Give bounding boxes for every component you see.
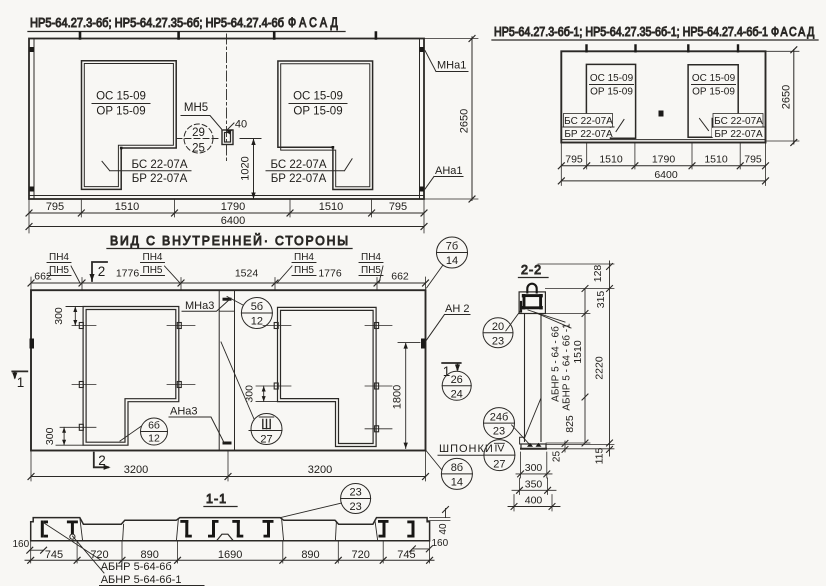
svg-text:8б: 8б	[451, 462, 463, 474]
svg-text:АНа1: АНа1	[435, 165, 463, 177]
svg-text:АНа3: АНа3	[170, 406, 198, 418]
svg-text:БС 22-07А: БС 22-07А	[131, 159, 187, 171]
svg-text:400: 400	[525, 495, 543, 507]
svg-text:23: 23	[493, 426, 505, 438]
svg-text:ПН5: ПН5	[361, 265, 381, 276]
svg-text:ПН5: ПН5	[49, 265, 69, 276]
svg-text:14: 14	[446, 255, 458, 267]
svg-text:ПН5: ПН5	[294, 265, 314, 276]
svg-text:2: 2	[98, 453, 106, 468]
svg-text:БР 22-07А: БР 22-07А	[564, 129, 613, 140]
svg-text:1800: 1800	[392, 385, 404, 409]
svg-text:40: 40	[438, 523, 449, 535]
svg-text:МН5: МН5	[184, 102, 208, 114]
svg-text:795: 795	[565, 154, 583, 166]
svg-text:26: 26	[451, 374, 463, 386]
svg-text:ВИД С ВНУТРЕННЕЙ· СТОРОНЫ: ВИД С ВНУТРЕННЕЙ· СТОРОНЫ	[110, 233, 350, 248]
svg-text:3200: 3200	[124, 464, 148, 476]
svg-text:1: 1	[17, 375, 25, 390]
svg-text:23: 23	[349, 487, 361, 499]
svg-text:ПН4: ПН4	[143, 252, 163, 263]
svg-text:300: 300	[525, 462, 543, 474]
svg-text:795: 795	[389, 201, 407, 213]
svg-text:2: 2	[98, 264, 106, 279]
svg-text:1510: 1510	[704, 154, 728, 166]
svg-text:1524: 1524	[235, 268, 259, 280]
svg-text:5б: 5б	[251, 301, 263, 313]
svg-text:315: 315	[595, 291, 607, 309]
svg-text:2650: 2650	[459, 109, 471, 133]
svg-text:МНа1: МНа1	[437, 60, 466, 72]
svg-text:27: 27	[260, 434, 272, 446]
svg-text:БР 22-07А: БР 22-07А	[714, 129, 763, 140]
svg-text:350: 350	[525, 479, 543, 491]
svg-text:ОР 15-09: ОР 15-09	[692, 87, 735, 98]
svg-text:БР 22-07А: БР 22-07А	[132, 173, 188, 185]
svg-text:2650: 2650	[780, 85, 792, 109]
svg-text:300: 300	[44, 427, 56, 445]
svg-text:25: 25	[552, 451, 563, 463]
svg-text:1510: 1510	[572, 340, 584, 364]
svg-text:БС 22-07А: БС 22-07А	[270, 159, 326, 171]
svg-text:128: 128	[592, 265, 604, 283]
svg-text:23: 23	[349, 501, 361, 513]
svg-text:АБНР 5-64-6б-1: АБНР 5-64-6б-1	[101, 574, 182, 586]
svg-text:БС 22-07А: БС 22-07А	[714, 116, 763, 127]
svg-text:720: 720	[352, 549, 370, 561]
svg-text:ФАСАД: ФАСАД	[288, 15, 341, 30]
svg-text:ОС 15-09: ОС 15-09	[590, 73, 634, 84]
svg-text:6б: 6б	[148, 420, 160, 432]
svg-text:27: 27	[493, 459, 505, 471]
svg-text:НР5-64.27.3-6б; НР5-64.27.35-6: НР5-64.27.3-6б; НР5-64.27.35-6б; НР5-64.…	[30, 15, 284, 30]
svg-text:12: 12	[148, 433, 160, 445]
svg-text:23: 23	[492, 336, 504, 348]
svg-text:1: 1	[443, 364, 451, 379]
svg-text:АБНР 5-64-6б: АБНР 5-64-6б	[101, 561, 172, 573]
svg-text:БС 22-07А: БС 22-07А	[564, 116, 613, 127]
svg-text:ОР 15-09: ОР 15-09	[590, 87, 633, 98]
svg-text:745: 745	[45, 549, 63, 561]
svg-text:ПН4: ПН4	[361, 252, 381, 263]
svg-text:825: 825	[564, 415, 576, 433]
svg-text:2220: 2220	[594, 356, 606, 380]
svg-text:1020: 1020	[240, 156, 252, 180]
svg-text:160: 160	[432, 538, 449, 549]
svg-text:НР5-64.27.3-6б-1; НР5-64.27.35: НР5-64.27.3-6б-1; НР5-64.27.35-6б-1; НР5…	[494, 25, 768, 39]
svg-text:6400: 6400	[654, 169, 678, 181]
svg-text:20: 20	[492, 321, 504, 333]
svg-text:АБНР 5 - 64 - 6б: АБНР 5 - 64 - 6б	[550, 326, 562, 402]
svg-text:IV: IV	[494, 443, 504, 455]
svg-text:24: 24	[451, 389, 463, 401]
svg-text:25: 25	[192, 143, 205, 155]
svg-text:1-1: 1-1	[206, 492, 227, 506]
svg-text:ФАСАД: ФАСАД	[771, 24, 816, 39]
svg-text:1510: 1510	[115, 201, 139, 213]
svg-text:ПН5: ПН5	[143, 265, 163, 276]
svg-text:1776: 1776	[116, 268, 140, 280]
svg-text:ОС 15-09: ОС 15-09	[692, 73, 736, 84]
svg-text:40: 40	[235, 119, 247, 131]
svg-text:6400: 6400	[221, 215, 245, 227]
svg-text:БР 22-07А: БР 22-07А	[271, 173, 327, 185]
svg-text:662: 662	[391, 271, 409, 283]
svg-text:МНа3: МНа3	[185, 300, 214, 312]
svg-text:14: 14	[451, 477, 463, 489]
svg-text:745: 745	[397, 549, 415, 561]
svg-text:1510: 1510	[599, 154, 623, 166]
svg-text:29: 29	[192, 127, 205, 139]
svg-text:7б: 7б	[446, 241, 458, 253]
svg-text:160: 160	[13, 539, 30, 550]
svg-text:ПН4: ПН4	[294, 252, 314, 263]
svg-text:3200: 3200	[308, 464, 332, 476]
svg-text:24б: 24б	[490, 412, 509, 424]
svg-text:ОР 15-09: ОР 15-09	[96, 106, 145, 118]
svg-text:1790: 1790	[221, 201, 245, 213]
svg-text:795: 795	[744, 154, 762, 166]
svg-text:1690: 1690	[218, 549, 242, 561]
svg-text:300: 300	[53, 307, 65, 325]
svg-text:890: 890	[141, 549, 159, 561]
svg-text:1790: 1790	[652, 154, 676, 166]
svg-text:300: 300	[244, 385, 256, 403]
svg-text:ПН4: ПН4	[49, 252, 69, 263]
svg-text:12: 12	[251, 316, 263, 328]
svg-text:115: 115	[594, 447, 606, 464]
svg-text:АБНР 5 - 64 - 6б -1: АБНР 5 - 64 - 6б -1	[561, 323, 573, 411]
svg-text:ОС 15-09: ОС 15-09	[293, 91, 343, 103]
svg-text:890: 890	[301, 549, 319, 561]
svg-text:ОР 15-09: ОР 15-09	[293, 106, 342, 118]
svg-text:АН 2: АН 2	[445, 303, 469, 315]
svg-text:1776: 1776	[318, 268, 342, 280]
svg-text:ОС 15-09: ОС 15-09	[96, 91, 146, 103]
svg-text:1510: 1510	[319, 201, 343, 213]
svg-text:2-2: 2-2	[521, 263, 542, 277]
svg-text:795: 795	[46, 201, 64, 213]
